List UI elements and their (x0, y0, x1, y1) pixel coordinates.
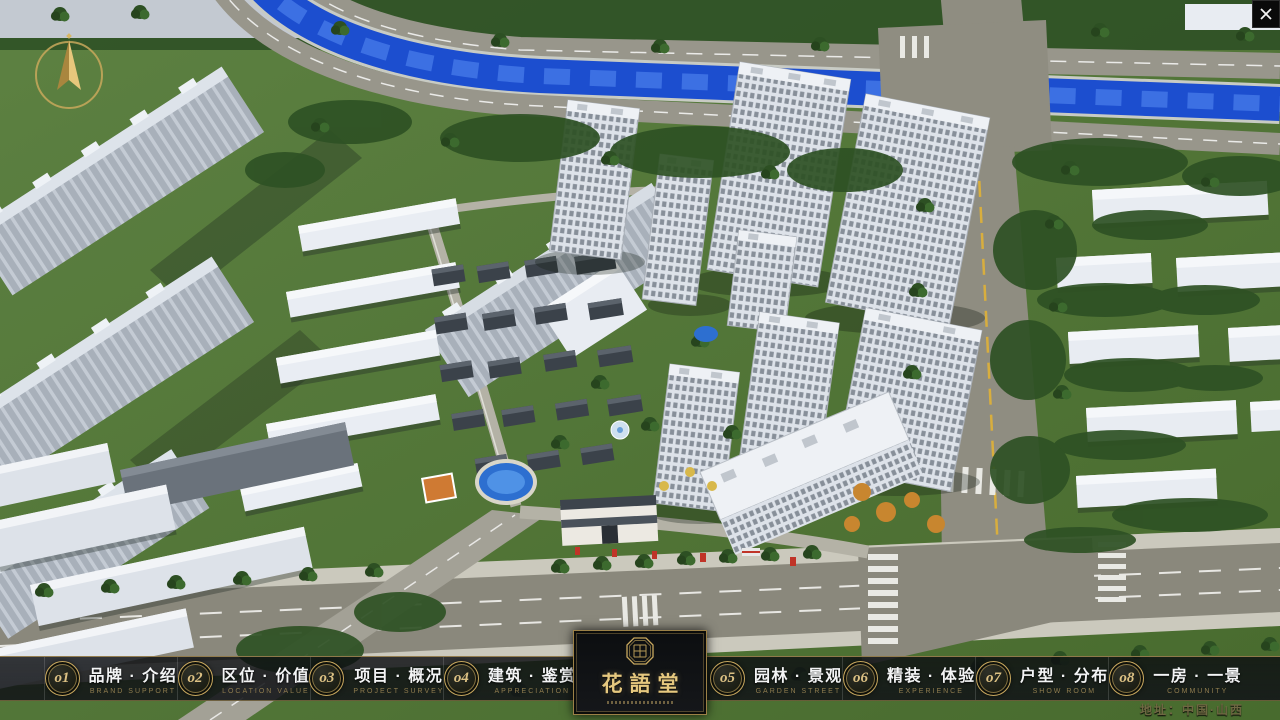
close-button[interactable] (1252, 0, 1280, 28)
navbar-right-spacer (1242, 657, 1280, 700)
nav-label: 品牌 · 介绍 (89, 662, 178, 686)
nav-item-architecture[interactable]: o4 建筑 · 鉴赏 APPRECIATION (444, 657, 577, 700)
nav-sublabel: APPRECIATION (494, 688, 570, 695)
nav-number-badge: o2 (178, 661, 213, 696)
nav-number-badge: o1 (45, 661, 80, 696)
nav-item-landscape[interactable]: o5 园林 · 景观 GARDEN STREET (710, 657, 843, 700)
close-icon (1259, 7, 1273, 21)
nav-number-badge: o7 (976, 661, 1011, 696)
nav-item-location-value[interactable]: o2 区位 · 价值 LOCATION VALUE (178, 657, 311, 700)
nav-item-brand-intro[interactable]: o1 品牌 · 介绍 BRAND SUPPORT (45, 657, 178, 700)
nav-number-badge: o4 (444, 661, 479, 696)
nav-item-room-view[interactable]: o8 一房 · 一景 COMMUNITY (1109, 657, 1242, 700)
nav-number-badge: o3 (309, 661, 344, 696)
logo-seal-icon (625, 636, 655, 666)
nav-sublabel: BRAND SUPPORT (90, 688, 176, 695)
nav-sublabel: LOCATION VALUE (222, 688, 310, 695)
nav-label: 区位 · 价值 (222, 662, 311, 686)
nav-sublabel: COMMUNITY (1167, 688, 1228, 695)
nav-sublabel: SHOW ROOM (1033, 688, 1097, 695)
aerial-render (0, 0, 1280, 720)
nav-label: 一房 · 一景 (1153, 662, 1242, 686)
nav-number-badge: o5 (710, 661, 745, 696)
nav-label: 建筑 · 鉴赏 (488, 662, 577, 686)
nav-number-badge: o6 (843, 661, 878, 696)
nav-number-badge: o8 (1109, 661, 1144, 696)
presentation-window: o1 品牌 · 介绍 BRAND SUPPORT o2 区位 · 价值 LOCA… (0, 0, 1280, 720)
nav-item-interior-experience[interactable]: o6 精装 · 体验 EXPERIENCE (843, 657, 976, 700)
nav-sublabel: GARDEN STREET (756, 688, 842, 695)
nav-sublabel: PROJECT SURVEY (353, 688, 444, 695)
nav-item-floorplan-distribution[interactable]: o7 户型 · 分布 SHOW ROOM (976, 657, 1109, 700)
logo-caption (607, 701, 673, 704)
nav-label: 精装 · 体验 (887, 662, 976, 686)
nav-label: 项目 · 概况 (355, 662, 444, 686)
logo-panel[interactable]: 花語堂 (573, 630, 707, 715)
nav-sublabel: EXPERIENCE (899, 688, 964, 695)
address-label: 地址：中国·山西 (1140, 701, 1244, 718)
nav-label: 户型 · 分布 (1020, 662, 1109, 686)
main-map-view[interactable] (0, 0, 1280, 720)
nav-label: 园林 · 景观 (754, 662, 843, 686)
nav-item-project-overview[interactable]: o3 项目 · 概况 PROJECT SURVEY (311, 657, 444, 700)
navbar-left-spacer (0, 657, 45, 700)
logo-title: 花語堂 (595, 668, 686, 698)
